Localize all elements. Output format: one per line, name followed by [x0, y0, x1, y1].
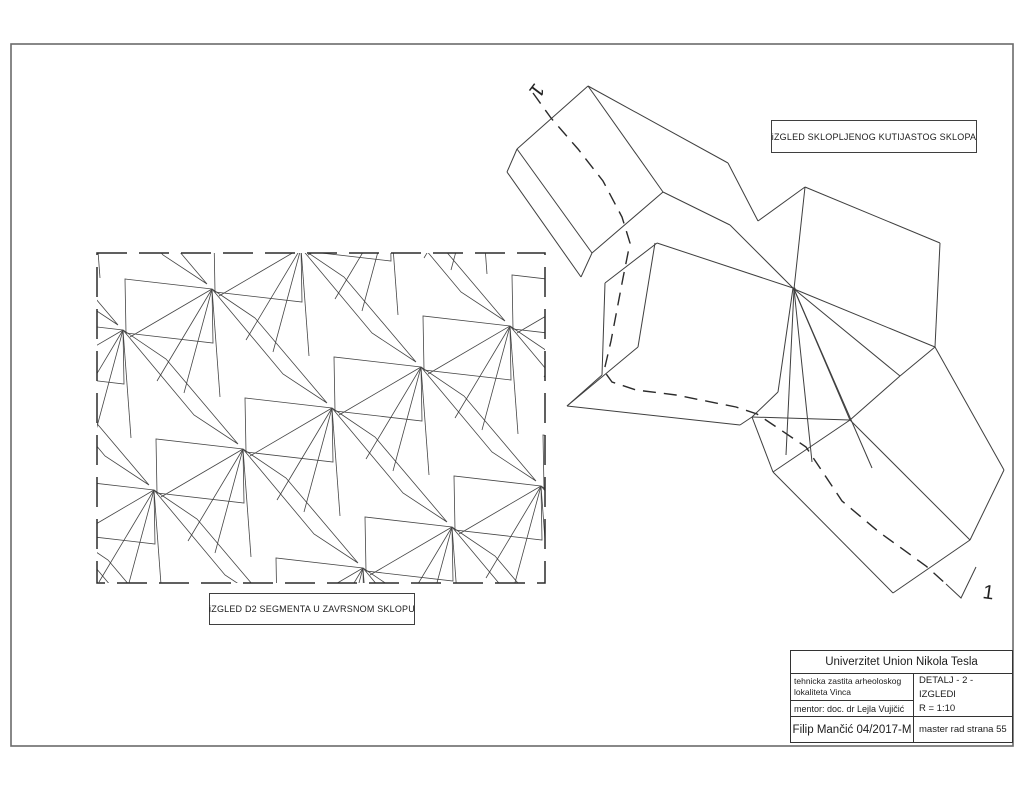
- title-block-author: Filip Mančić 04/2017-M: [791, 717, 914, 742]
- right-view-label-box: iZGLED SKLOPLJENOG KUTIJASTOG SKLOPA: [771, 120, 977, 153]
- title-block-project: tehnicka zastita arheoloskog lokaliteta …: [791, 674, 913, 701]
- right-view-label: iZGLED SKLOPLJENOG KUTIJASTOG SKLOPA: [772, 132, 976, 142]
- title-block-page-ref: master rad strana 55: [914, 717, 1012, 742]
- left-view-label: iZGLED D2 SEGMENTA U ZAVRSNOM SKLOPU: [209, 604, 415, 614]
- drawing-sheet: 11 iZGLED SKLOPLJENOG KUTIJASTOG SKLOPA …: [0, 0, 1024, 791]
- title-block-mentor: mentor: doc. dr Lejla Vujičić: [791, 701, 913, 716]
- section-marker-bottom: 1: [981, 581, 995, 604]
- title-block: Univerzitet Union Nikola Tesla tehnicka …: [790, 650, 1013, 743]
- section-line: 11: [524, 79, 995, 605]
- isometric-assembly: [507, 86, 1004, 593]
- title-block-university: Univerzitet Union Nikola Tesla: [791, 651, 1012, 674]
- left-view-label-box: iZGLED D2 SEGMENTA U ZAVRSNOM SKLOPU: [209, 593, 415, 625]
- project-line-1: tehnicka zastita arheoloskog: [794, 676, 910, 687]
- title-block-detail: DETALJ - 2 - IZGLEDI: [919, 674, 1007, 702]
- project-line-2: lokaliteta Vinca: [794, 687, 910, 698]
- title-block-scale: R = 1:10: [919, 702, 1007, 716]
